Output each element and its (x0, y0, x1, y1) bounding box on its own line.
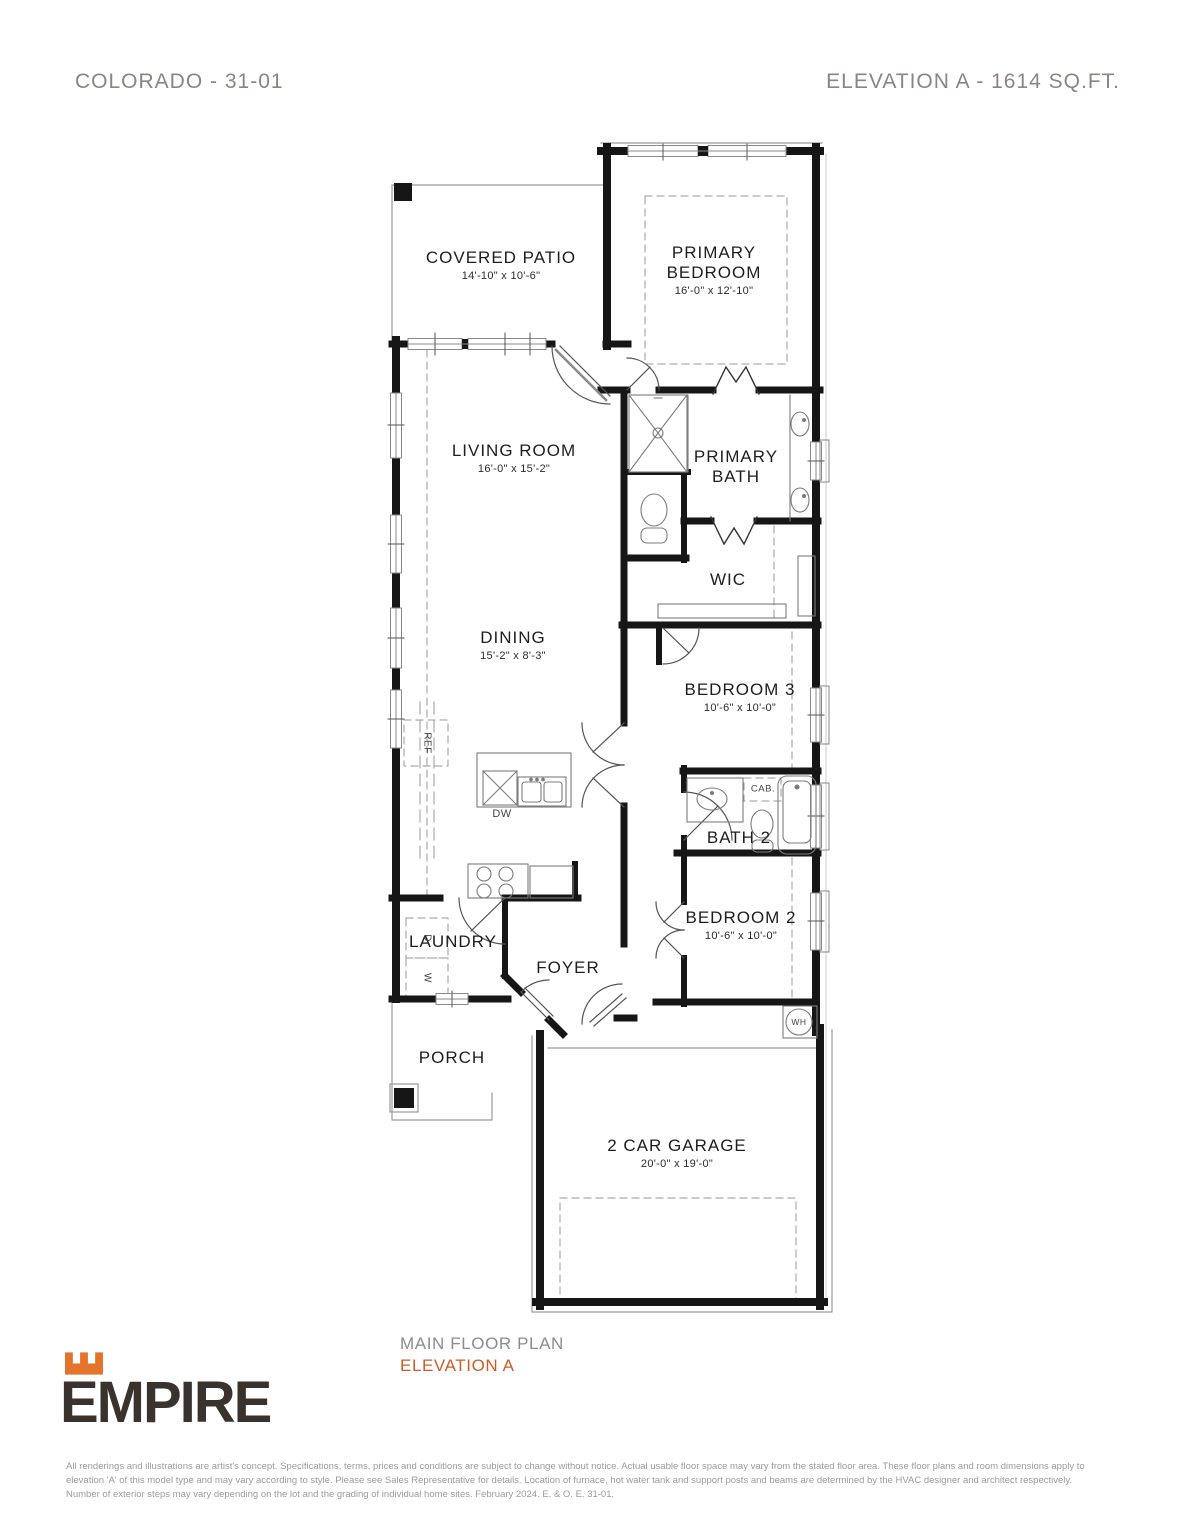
floor-plan-drawing (0, 0, 1187, 1536)
kitchen-island (477, 753, 571, 807)
vanity-primary (790, 395, 809, 521)
shower (629, 395, 688, 472)
brand-wordmark: EMPIRE (60, 1375, 270, 1431)
label-porch: PORCH (419, 1048, 485, 1068)
floorplan-page: COLORADO - 31-01 ELEVATION A - 1614 SQ.F… (0, 0, 1187, 1536)
walls (392, 147, 824, 1306)
label-foyer: FOYER (536, 958, 600, 978)
range (468, 864, 573, 898)
fridge-label: REF (422, 732, 433, 754)
label-primary-bath: PRIMARY BATH (684, 447, 788, 487)
label-dining: DINING15'-2" x 8'-3" (480, 628, 546, 662)
dishwasher-label: DW (492, 808, 511, 820)
garage-door-outline (560, 1198, 796, 1304)
label-living-room: LIVING ROOM16'-0" x 15'-2" (452, 441, 576, 475)
label-garage: 2 CAR GARAGE20'-0" x 19'-0" (607, 1136, 747, 1170)
disclaimer-line: All renderings and illustrations are art… (66, 1460, 1128, 1474)
disclaimer-line: Number of exterior steps may vary depend… (66, 1488, 1128, 1502)
water-heater-label: WH (791, 1017, 806, 1027)
disclaimer-line: elevation 'A' of this model type and may… (66, 1474, 1128, 1488)
toilet-primary (641, 494, 667, 543)
washer-label: W (422, 973, 433, 983)
plan-elevation: ELEVATION A (400, 1356, 515, 1376)
empire-logo: EMPIRE (60, 1352, 270, 1431)
plan-title: MAIN FLOOR PLAN (400, 1334, 564, 1354)
porch-post (394, 1088, 414, 1108)
label-bedroom-2: BEDROOM 210'-6" x 10'-0" (685, 908, 796, 942)
label-bedroom-3: BEDROOM 310'-6" x 10'-0" (684, 680, 795, 714)
label-primary-bedroom: PRIMARY BEDROOM16'-0" x 12'-10" (649, 243, 779, 297)
cabinet-label: CAB. (751, 784, 775, 795)
dryer-label: D (422, 934, 433, 942)
disclaimer: All renderings and illustrations are art… (66, 1460, 1128, 1502)
patio-post (394, 183, 412, 201)
label-covered-patio: COVERED PATIO14'-10" x 10'-6" (426, 248, 576, 282)
label-bath-2: BATH 2 (707, 828, 771, 848)
label-wic: WIC (710, 570, 746, 590)
